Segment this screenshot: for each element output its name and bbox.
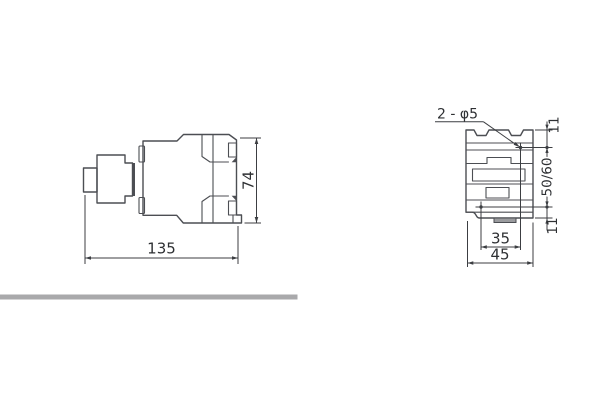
arrowhead-right-icon [515,245,521,248]
side-view-bottom-contour [202,196,229,223]
side-view-top-contour [202,135,229,163]
side-view-body-outline [143,135,242,224]
side-view-bottom-clip-tooth [232,196,237,201]
side-view-knob [84,168,98,192]
side-view-foot-edge [233,215,237,223]
dim-label-45: 45 [490,246,509,264]
holes-callout: 2 - φ5 [435,107,520,148]
mounting-hole-bottom [479,205,482,208]
drawing-canvas: 135 74 2 - φ5 [0,0,600,400]
arrowhead-left-icon [468,261,474,264]
arrowhead-right-icon [527,261,533,264]
arrowhead-down-icon [255,217,259,223]
side-view-top-clip-tooth [232,157,237,162]
din-rail-foot [494,218,516,223]
front-view [466,130,533,223]
dim-side-height: 74 [239,138,261,223]
callout-leader-line [484,122,519,146]
side-view [84,135,242,224]
dim-node-dot [545,205,548,208]
holes-callout-label: 2 - φ5 [437,107,478,123]
dim-side-width: 135 [85,195,238,264]
front-view-step-line [466,158,533,164]
front-view-band-lines [466,143,533,212]
dim-node-dot [545,146,548,149]
divider-bar [0,295,298,300]
dim-label-top-11: 11 [547,116,563,133]
front-view-small-window [486,188,509,199]
arrowhead-right-icon [232,256,238,260]
dim-label-74: 74 [239,171,257,190]
dim-front-vertical-chain: 11 50/60 11 [535,116,563,234]
dimension-drawing: 135 74 2 - φ5 [0,0,600,400]
arrowhead-up-icon [255,138,259,144]
arrowhead-left-icon [481,245,487,248]
front-view-label-window [473,169,526,181]
side-view-bottom-slot [229,201,237,215]
arrowhead-left-icon [85,256,91,260]
dim-label-135: 135 [147,240,176,258]
side-view-top-slot [229,143,237,157]
dim-label-bottom-11: 11 [545,217,561,234]
side-view-front-block [97,155,133,203]
dim-label-50-60: 50/60 [540,158,556,197]
